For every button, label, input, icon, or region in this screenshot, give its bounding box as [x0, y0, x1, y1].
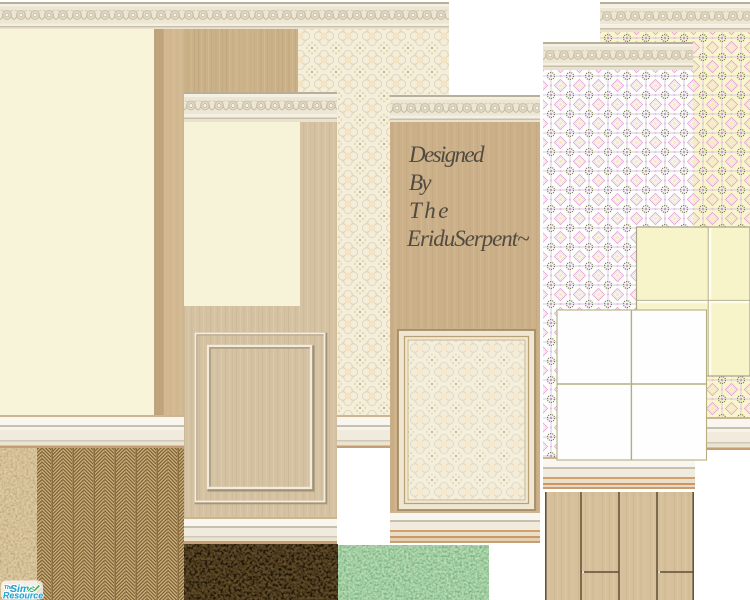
svg-text:By: By — [409, 170, 432, 195]
svg-text:EriduSerpent~: EriduSerpent~ — [406, 226, 530, 251]
svg-text:Resource: Resource — [3, 591, 43, 600]
svg-text:The: The — [409, 198, 449, 223]
svg-text:Designed: Designed — [408, 142, 485, 167]
